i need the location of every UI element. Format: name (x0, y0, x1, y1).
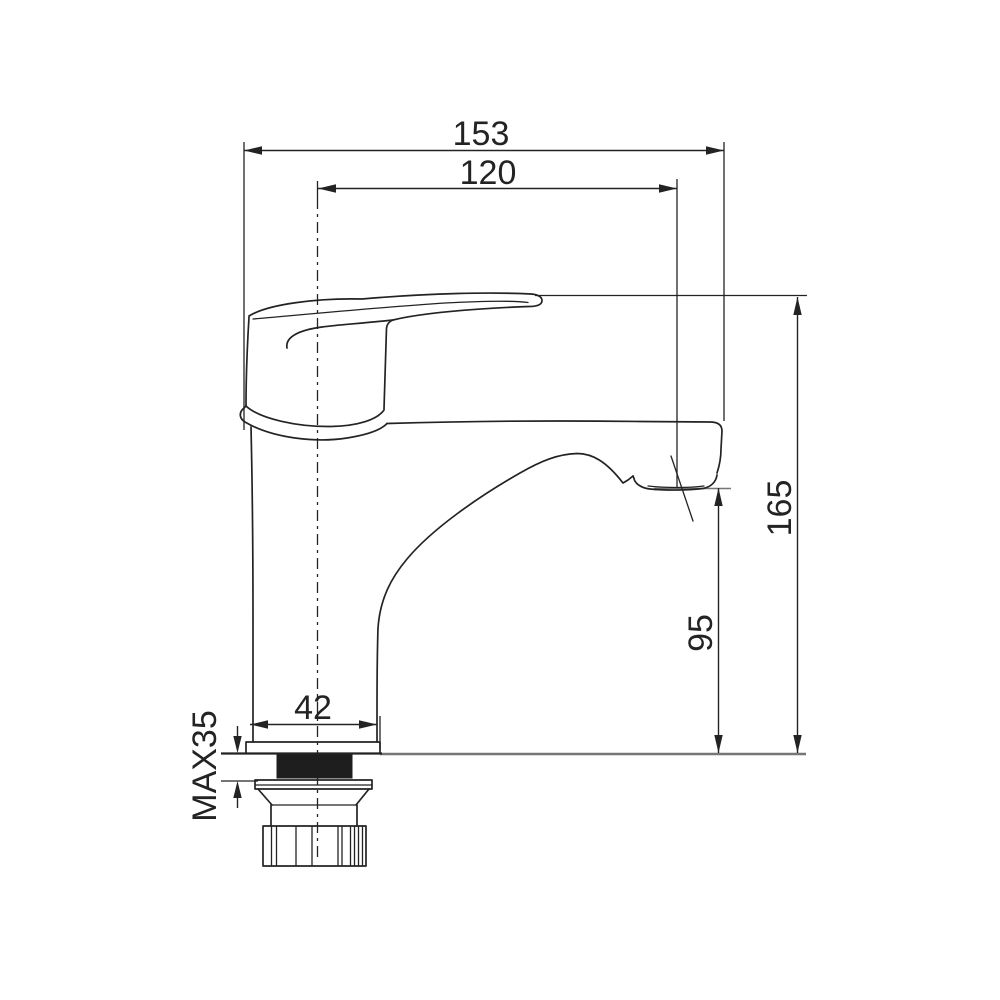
dim-label-95: 95 (682, 614, 720, 652)
arrowhead-down (793, 735, 801, 753)
dim-label-42: 42 (294, 689, 332, 727)
arrowhead-right (706, 146, 724, 154)
arrowhead-up (233, 781, 241, 798)
lever-blade (249, 293, 542, 409)
dimension-overall-height: 165 (761, 297, 802, 753)
flange-outline (246, 742, 380, 753)
faucet-handle-lever (240, 293, 542, 440)
arrowhead-right (659, 184, 677, 192)
dimension-spout-reach: 120 (318, 154, 677, 193)
aerator-inner-line (648, 486, 704, 488)
technical-drawing-page: 153 120 165 95 42 MAX35 (0, 0, 1000, 1000)
handle-cap-left-edge (246, 317, 249, 406)
faucet-column (251, 427, 253, 742)
base-flange (246, 742, 380, 753)
arrowhead-right (359, 720, 377, 728)
arrowhead-left (244, 146, 262, 154)
column-left-edge (251, 427, 253, 742)
dim-label-120: 120 (460, 154, 517, 192)
dim-label-153: 153 (453, 115, 510, 153)
spout-top-and-end (387, 421, 722, 473)
faucet-body-spout (377, 421, 722, 742)
dimension-overall-length: 153 (244, 115, 724, 155)
nut-taper-right (356, 789, 369, 805)
faucet-technical-drawing: 153 120 165 95 42 MAX35 (0, 0, 1000, 1000)
rubber-gasket (277, 755, 352, 778)
arrowhead-left (318, 184, 336, 192)
dim-label-165: 165 (761, 480, 799, 537)
arrowhead-down (233, 736, 241, 753)
handle-base-ring (240, 406, 387, 440)
nut-taper-left (258, 789, 272, 805)
threaded-shank-knurled-nut (263, 826, 366, 866)
arrowhead-up (793, 297, 801, 315)
arrowhead-up (714, 488, 722, 506)
dimension-base-width: 42 (250, 689, 377, 729)
dimension-spout-outlet-height: 95 (682, 488, 723, 753)
handle-cap-bottom (246, 406, 384, 427)
dim-label-max35: MAX35 (186, 710, 224, 822)
lever-top-rim (253, 301, 528, 319)
dimension-max-mounting-thickness: MAX35 (186, 710, 242, 822)
arrowhead-down (714, 735, 722, 753)
mounting-nut (255, 780, 372, 826)
spout-underside-curve (377, 454, 633, 743)
lever-rear-curl (287, 320, 393, 348)
